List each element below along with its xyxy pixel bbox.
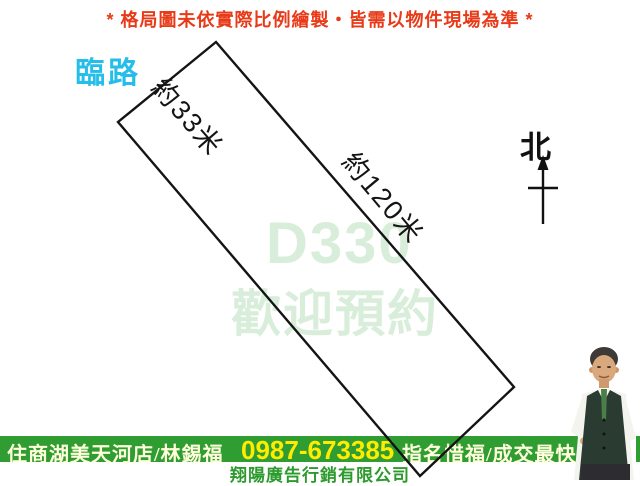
footer-bar: 住商湖美天河店/林錫福 0987-673385 指名惜福/成交最快 (0, 436, 640, 462)
north-label: 北 (520, 122, 551, 167)
short-edge-dimension-label: 約33米 (144, 68, 234, 163)
face (592, 355, 616, 383)
tie (601, 389, 607, 420)
agent-photo (556, 342, 640, 480)
trousers (581, 464, 630, 480)
disclaimer-text: * 格局圖未依實際比例繪製‧皆需以物件現場為準 * (0, 6, 640, 32)
company-name: 翔陽廣告行銷有限公司 (190, 461, 450, 486)
watermark-message: 歡迎預約 (231, 274, 439, 346)
road-label: 臨路 (75, 48, 141, 92)
